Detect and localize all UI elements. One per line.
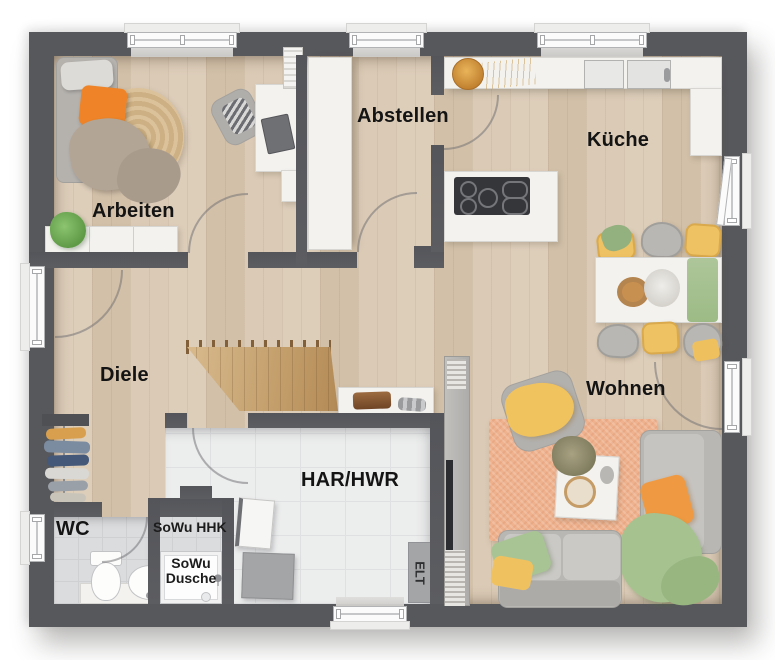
door-cap	[32, 340, 42, 345]
window-inner-sill	[541, 48, 643, 57]
room-label-kueche: Küche	[587, 129, 649, 152]
sink-basin-left	[584, 60, 624, 89]
burner	[460, 181, 477, 198]
burner	[478, 188, 498, 208]
door-cap	[727, 425, 737, 430]
wall-wc-north	[54, 502, 102, 517]
shower-drain	[201, 592, 211, 602]
bench-cushion	[353, 391, 392, 409]
fruit-bowl	[452, 58, 484, 90]
window-cap	[639, 35, 644, 45]
room-label-sowu-dusche: SoWu Dusche	[158, 556, 224, 586]
burner	[460, 198, 477, 215]
window-cap	[336, 609, 341, 619]
coat-item	[47, 454, 89, 466]
plant-icon	[50, 212, 86, 248]
sowu-dusche-line1: SoWu	[171, 555, 210, 571]
coat-item	[44, 440, 90, 454]
window-cap	[352, 35, 357, 45]
room-label-abstellen: Abstellen	[357, 105, 449, 128]
coat-item	[45, 468, 89, 480]
toilet-bowl	[91, 562, 121, 601]
storage-cabinet	[308, 57, 352, 250]
door-sill	[20, 263, 30, 351]
room-label-arbeiten: Arbeiten	[92, 200, 175, 223]
wall-har-north-right	[248, 413, 435, 428]
window-cap	[130, 35, 135, 45]
faucet-icon	[664, 68, 670, 82]
elt-panel: ELT	[408, 542, 431, 603]
wall-pantry-kitchen-bottom	[431, 145, 444, 252]
shoes	[398, 397, 427, 412]
wheat-decor	[482, 57, 537, 89]
door-cap	[727, 364, 737, 369]
terrace-door	[724, 361, 740, 433]
room-label-wohnen: Wohnen	[586, 378, 666, 401]
window-mullion	[180, 35, 185, 45]
window-inner-sill	[131, 48, 233, 57]
window-mullion	[590, 35, 595, 45]
room-label-diele: Diele	[100, 364, 149, 387]
tv-screen	[446, 460, 453, 554]
wall-har-wohnen	[430, 413, 444, 604]
room-label-wc: WC	[56, 518, 90, 541]
table-runner	[687, 258, 718, 322]
wall-pantry-kitchen-top	[431, 56, 444, 95]
window-inner-sill	[336, 597, 404, 606]
dryer-unit	[241, 552, 295, 600]
coat-rack-bar	[42, 414, 89, 426]
window-inner-sill	[353, 48, 420, 57]
window-har	[333, 606, 407, 622]
burner	[502, 197, 528, 215]
wall-har-north-left	[165, 413, 187, 428]
wall-abstellen-south-left	[307, 252, 357, 268]
flower-decor	[644, 269, 680, 307]
window-cap	[540, 35, 545, 45]
table-plant	[552, 436, 596, 476]
floor-plan: ELT	[0, 0, 775, 660]
window-kueche	[537, 32, 647, 48]
window-abstellen	[349, 32, 424, 48]
decor-tray	[564, 476, 596, 508]
decor-vase	[600, 466, 614, 484]
wall-arbeiten-south-left	[29, 252, 188, 268]
dining-chair-gray	[640, 221, 683, 258]
dining-chair-yellow	[684, 223, 722, 258]
coat-item	[46, 427, 87, 440]
wall-bath-east	[222, 498, 234, 604]
room-label-har-hwr: HAR/HWR	[301, 469, 399, 492]
washing-machine	[235, 498, 275, 550]
window-wc	[29, 514, 45, 562]
front-door	[29, 266, 45, 348]
sideboard-divider	[133, 227, 134, 253]
book-stack	[445, 550, 465, 606]
window-cap	[416, 35, 421, 45]
window-arbeiten	[127, 32, 237, 48]
sofa-cushion	[563, 534, 620, 580]
sowu-dusche-line2: Dusche	[166, 570, 217, 586]
door-cap	[32, 269, 42, 274]
door-sill	[742, 358, 752, 436]
wall-arbeiten-east	[296, 55, 307, 268]
chimney-block	[180, 486, 212, 499]
coat-item	[48, 480, 88, 491]
wall-bath-west	[148, 498, 160, 604]
book-stack	[447, 359, 466, 389]
room-label-sowu-hhk: SoWu HHK	[153, 519, 227, 535]
window-cap	[32, 517, 42, 522]
window-sill	[330, 621, 410, 630]
dining-chair-yellow	[641, 321, 680, 355]
window-cap	[32, 554, 42, 559]
kitchen-counter-right	[690, 88, 722, 156]
window-cap	[399, 609, 404, 619]
sideboard-divider	[89, 227, 90, 253]
elt-label: ELT	[412, 561, 427, 585]
window-sill	[742, 153, 752, 229]
window-cap	[727, 218, 737, 223]
window-cap	[229, 35, 234, 45]
